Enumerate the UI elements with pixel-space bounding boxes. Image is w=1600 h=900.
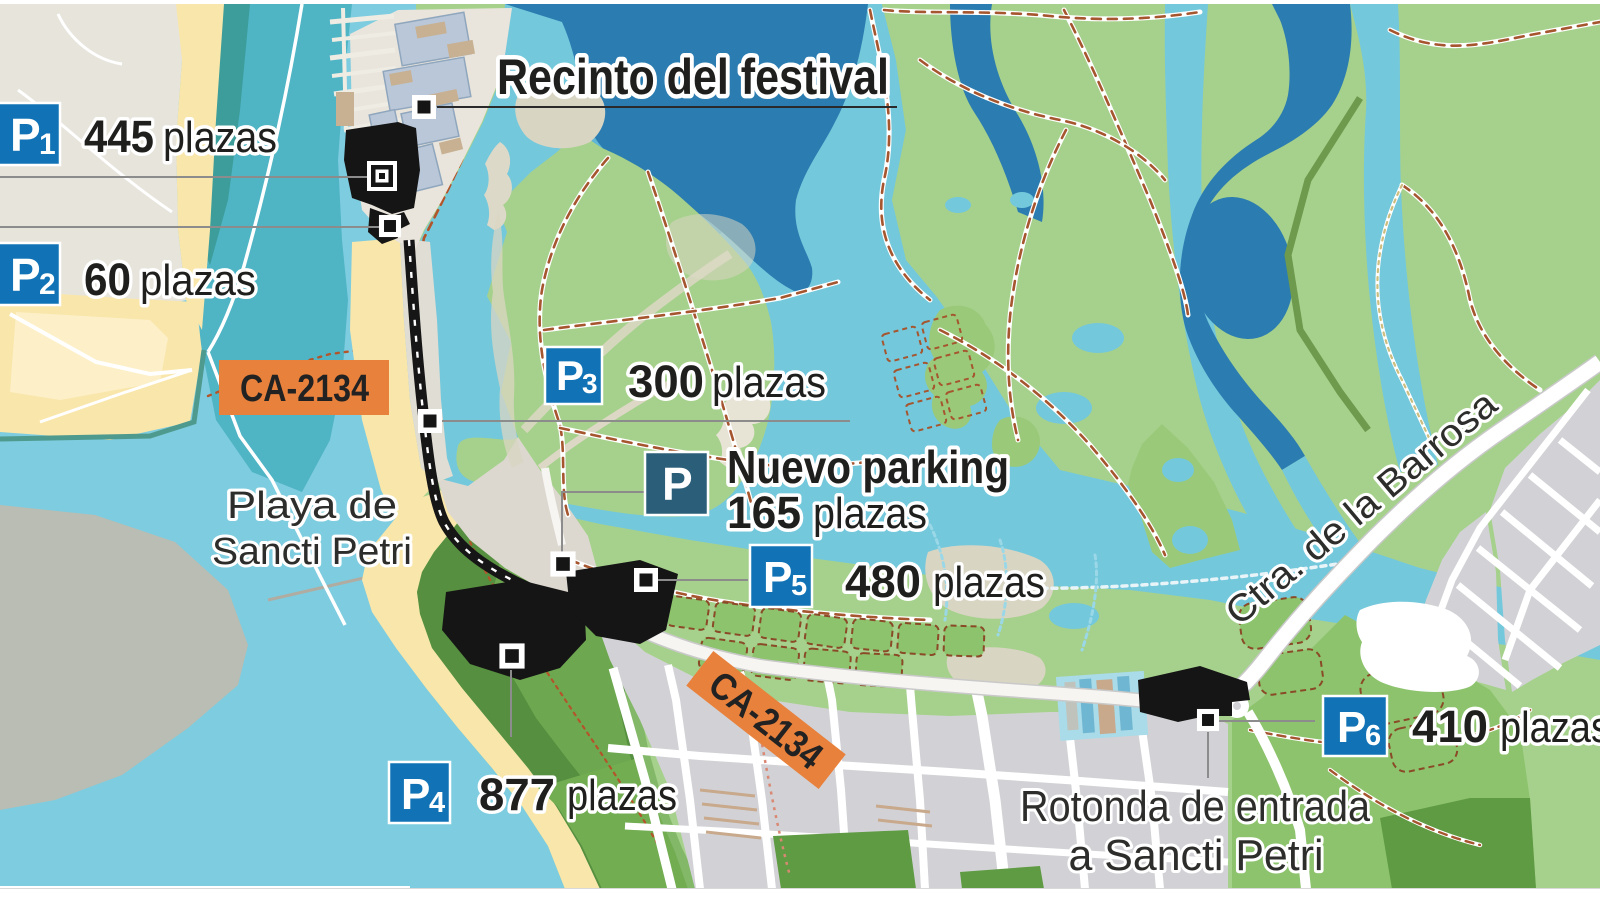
svg-text:plazas: plazas: [933, 558, 1045, 607]
svg-text:P: P: [401, 770, 430, 819]
svg-text:445: 445: [84, 111, 154, 162]
svg-text:877: 877: [479, 769, 555, 820]
svg-text:Recinto del festival: Recinto del festival: [497, 49, 889, 105]
svg-text:2: 2: [39, 268, 56, 301]
svg-text:CA-2134: CA-2134: [240, 368, 369, 410]
svg-text:P: P: [662, 458, 693, 510]
svg-text:a Sancti Petri: a Sancti Petri: [1069, 831, 1324, 880]
svg-text:plazas: plazas: [140, 256, 256, 305]
svg-text:plazas: plazas: [567, 771, 677, 820]
svg-text:4: 4: [429, 787, 445, 819]
svg-text:1: 1: [39, 128, 56, 161]
svg-text:Sancti Petri: Sancti Petri: [212, 531, 412, 573]
svg-text:P: P: [10, 249, 41, 301]
svg-text:plazas: plazas: [712, 358, 826, 407]
svg-text:P: P: [763, 553, 792, 602]
svg-text:165: 165: [727, 487, 801, 538]
svg-text:P: P: [1337, 703, 1366, 752]
svg-text:6: 6: [1365, 720, 1381, 752]
svg-text:480: 480: [845, 556, 921, 607]
svg-text:300: 300: [628, 356, 704, 407]
svg-text:Playa de: Playa de: [227, 485, 397, 527]
svg-text:Nuevo parking: Nuevo parking: [727, 441, 1009, 493]
svg-text:Rotonda de entrada: Rotonda de entrada: [1020, 782, 1370, 831]
svg-text:P: P: [556, 352, 584, 399]
svg-text:P: P: [10, 109, 41, 161]
svg-text:3: 3: [582, 368, 598, 399]
svg-text:60: 60: [84, 254, 131, 305]
svg-text:plazas: plazas: [813, 489, 927, 538]
svg-text:5: 5: [791, 570, 807, 602]
svg-text:410: 410: [1412, 701, 1488, 752]
svg-text:plazas: plazas: [163, 113, 277, 162]
svg-text:plazas: plazas: [1500, 703, 1600, 752]
